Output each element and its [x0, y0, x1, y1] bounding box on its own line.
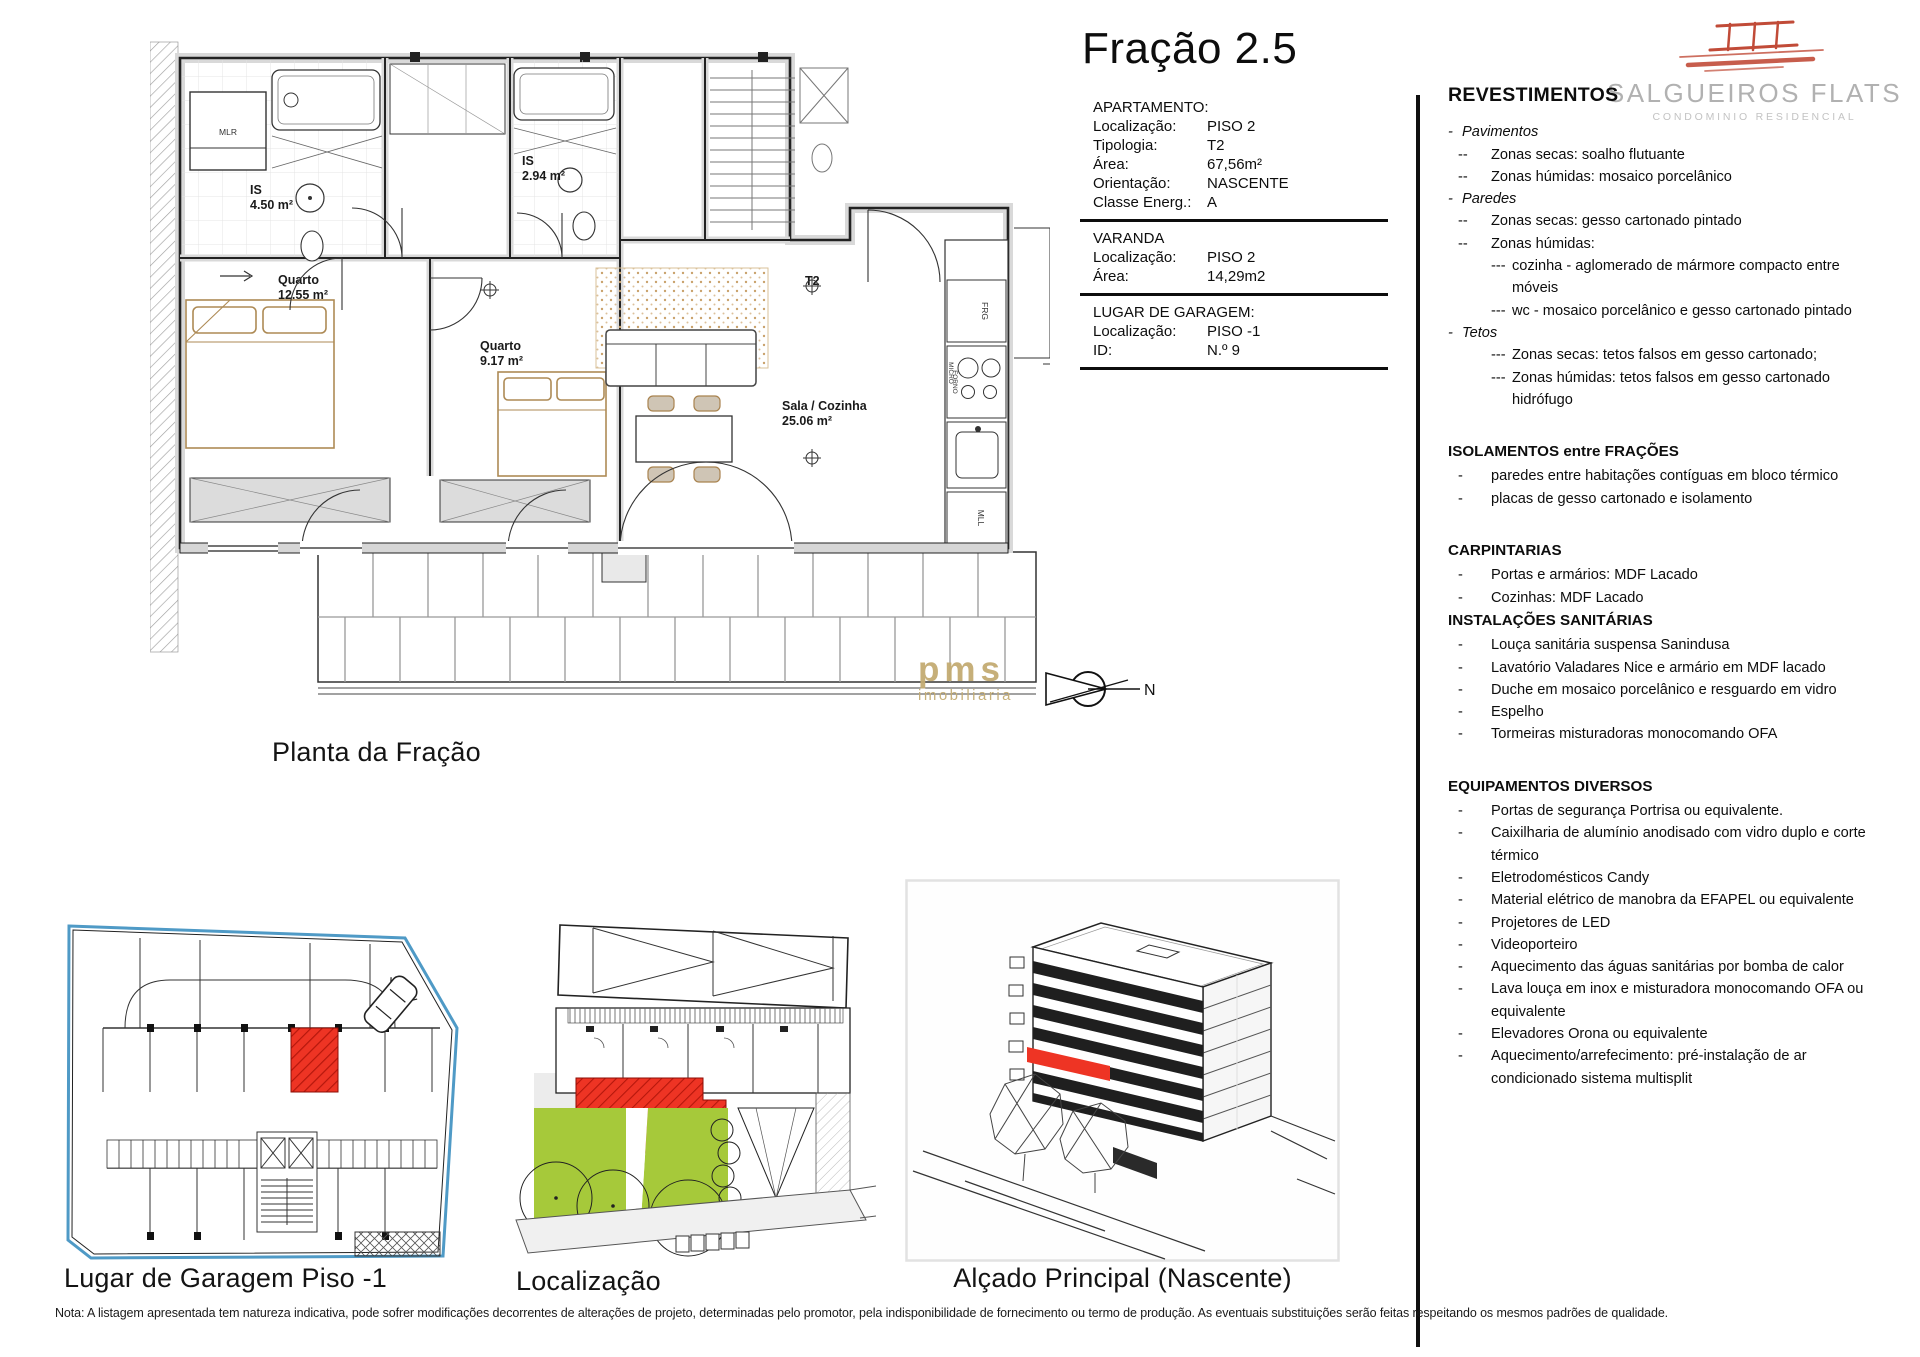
spec-text: Cozinhas: MDF Lacado — [1491, 587, 1884, 609]
info-value: PISO 2 — [1207, 117, 1388, 136]
assigned-parking-hatch — [291, 1028, 338, 1092]
spec-bullet: -- — [1458, 233, 1491, 255]
room-label-quarto1: Quarto — [278, 273, 319, 287]
spec-text: Zonas húmidas: tetos falsos em gesso car… — [1512, 367, 1884, 412]
spec-section: - Pavimentos -- Zonas secas: soalho flut… — [1448, 121, 1884, 411]
spec-line: - placas de gesso cartonado e isolamento — [1448, 488, 1884, 510]
spec-text: Zonas secas: gesso cartonado pintado — [1491, 210, 1884, 232]
info-row: Área: 14,29m2 — [1093, 267, 1388, 286]
elevation-drawing — [905, 879, 1340, 1262]
bathroom-1: MLR IS 4.50 m² — [182, 60, 383, 261]
info-row: Classe Energ.: A — [1093, 193, 1388, 212]
info-row: Localização: PISO 2 — [1093, 248, 1388, 267]
room-area-is1: 4.50 m² — [250, 198, 293, 212]
caption-garage: Lugar de Garagem Piso -1 — [64, 1263, 387, 1294]
spec-line: - Elevadores Orona ou equivalente — [1448, 1023, 1884, 1045]
spec-text: Lava louça em inox e misturadora monocom… — [1491, 978, 1884, 1023]
spec-bullet: - — [1458, 701, 1491, 723]
spec-line: - Lavatório Valadares Nice e armário em … — [1448, 657, 1884, 679]
info-row: Tipologia: T2 — [1093, 136, 1388, 155]
spec-text: Louça sanitária suspensa Sanindusa — [1491, 634, 1884, 656]
info-label: ID: — [1093, 341, 1207, 360]
spec-bullet: - — [1458, 889, 1491, 911]
spec-line: - Lava louça em inox e misturadora monoc… — [1448, 978, 1884, 1023]
spec-text: Zonas secas: soalho flutuante — [1491, 144, 1884, 166]
spec-bullet: --- — [1491, 255, 1512, 300]
info-value: PISO -1 — [1207, 322, 1388, 341]
info-value: NASCENTE — [1207, 174, 1388, 193]
spec-section-heading: INSTALAÇÕES SANITÁRIAS — [1448, 610, 1884, 632]
north-compass-icon: N — [1040, 660, 1160, 718]
page-title: Fração 2.5 — [1082, 26, 1297, 72]
spec-bullet: - — [1458, 723, 1491, 745]
spec-section: ISOLAMENTOS entre FRAÇÕES - paredes entr… — [1448, 441, 1884, 510]
spec-line: - Portas de segurança Portrisa ou equiva… — [1448, 800, 1884, 822]
spec-text: Elevadores Orona ou equivalente — [1491, 1023, 1884, 1045]
spec-text: Tetos — [1462, 322, 1884, 344]
info-value: N.º 9 — [1207, 341, 1388, 360]
spec-bullet: --- — [1491, 300, 1512, 322]
bathroom-2: IS 2.94 m² — [512, 60, 618, 256]
spec-line: - Videoporteiro — [1448, 934, 1884, 956]
info-label: Área: — [1093, 267, 1207, 286]
spec-line: - Paredes — [1448, 188, 1884, 210]
spec-bullet: -- — [1458, 210, 1491, 232]
info-row: Localização: PISO -1 — [1093, 322, 1388, 341]
info-section: APARTAMENTO: Localização: PISO 2 Tipolog… — [1080, 98, 1388, 222]
spec-line: - paredes entre habitações contíguas em … — [1448, 465, 1884, 487]
spec-text: Aquecimento/arrefecimento: pré-instalaçã… — [1491, 1045, 1884, 1090]
spec-line: -- Zonas secas: gesso cartonado pintado — [1448, 210, 1884, 232]
party-wall-hatch — [150, 42, 178, 652]
spec-bullet: - — [1458, 488, 1491, 510]
ramp-grate — [355, 1232, 440, 1256]
spec-line: - Caixilharia de alumínio anodisado com … — [1448, 822, 1884, 867]
oven-label: FORNO — [951, 370, 958, 393]
dishwasher-label: MLL — [976, 510, 986, 527]
spec-section: INSTALAÇÕES SANITÁRIAS - Louça sanitária… — [1448, 610, 1884, 746]
info-row: Orientação: NASCENTE — [1093, 174, 1388, 193]
courtyard — [738, 1093, 850, 1205]
spec-line: --- cozinha - aglomerado de mármore comp… — [1448, 255, 1884, 300]
spec-text: Zonas húmidas: — [1491, 233, 1884, 255]
spec-line: -- Zonas secas: soalho flutuante — [1448, 144, 1884, 166]
caption-elevation: Alçado Principal (Nascente) — [905, 1263, 1340, 1294]
spec-line: - Louça sanitária suspensa Sanindusa — [1448, 634, 1884, 656]
spec-text: Portas e armários: MDF Lacado — [1491, 564, 1884, 586]
spec-bullet: - — [1458, 822, 1491, 867]
caption-floor-plan: Planta da Fração — [272, 737, 481, 768]
spec-section: EQUIPAMENTOS DIVERSOS - Portas de segura… — [1448, 776, 1884, 1090]
spec-section-heading: CARPINTARIAS — [1448, 540, 1884, 562]
info-value: 14,29m2 — [1207, 267, 1388, 286]
spec-bullet: - — [1458, 634, 1491, 656]
info-row: Localização: PISO 2 — [1093, 117, 1388, 136]
spec-bullet: - — [1448, 121, 1462, 143]
specs-title: REVESTIMENTOS — [1448, 84, 1884, 106]
info-value: T2 — [1207, 136, 1388, 155]
spec-line: --- wc - mosaico porcelânico e gesso car… — [1448, 300, 1884, 322]
facade-wall — [180, 541, 1008, 555]
spec-text: Espelho — [1491, 701, 1884, 723]
spec-line: - Aquecimento/arrefecimento: pré-instala… — [1448, 1045, 1884, 1090]
info-row: Área: 67,56m² — [1093, 155, 1388, 174]
fridge-label: FRG — [980, 302, 990, 320]
info-label: Localização: — [1093, 322, 1207, 341]
spec-line: --- Zonas secas: tetos falsos em gesso c… — [1448, 344, 1884, 366]
kitchen-column: FRG MICRO FORNO MLL — [945, 240, 1008, 548]
agency-watermark: pms imobiliaria — [918, 652, 1013, 703]
unit-info-panel: APARTAMENTO: Localização: PISO 2 Tipolog… — [1080, 98, 1388, 377]
room-area-quarto2: 9.17 m² — [480, 354, 523, 368]
spec-bullet: -- — [1458, 144, 1491, 166]
spec-text: placas de gesso cartonado e isolamento — [1491, 488, 1884, 510]
spec-line: - Cozinhas: MDF Lacado — [1448, 587, 1884, 609]
spec-text: cozinha - aglomerado de mármore compacto… — [1512, 255, 1884, 300]
info-label: Localização: — [1093, 117, 1207, 136]
spec-bullet: - — [1458, 657, 1491, 679]
spec-line: - Espelho — [1448, 701, 1884, 723]
spec-text: wc - mosaico porcelânico e gesso cartona… — [1512, 300, 1884, 322]
garage-plan-drawing — [55, 910, 475, 1275]
spec-bullet: - — [1458, 867, 1491, 889]
brand-sketch-icon — [1655, 12, 1855, 72]
info-separator — [1080, 367, 1388, 370]
building-roof — [558, 925, 848, 1008]
spec-text: Material elétrico de manobra da EFAPEL o… — [1491, 889, 1884, 911]
room-area-sala: 25.06 m² — [782, 414, 832, 428]
disclaimer-note: Nota: A listagem apresentada tem naturez… — [55, 1306, 1385, 1320]
info-separator — [1080, 293, 1388, 296]
spec-text: Lavatório Valadares Nice e armário em MD… — [1491, 657, 1884, 679]
spec-line: - Eletrodomésticos Candy — [1448, 867, 1884, 889]
info-section: LUGAR DE GARAGEM: Localização: PISO -1 I… — [1080, 303, 1388, 370]
spec-sheet: { "title": "Fração 2.5", "info": { "sect… — [0, 0, 1920, 1357]
location-plan-drawing — [498, 868, 878, 1268]
spec-line: --- Zonas húmidas: tetos falsos em gesso… — [1448, 367, 1884, 412]
spec-text: Paredes — [1462, 188, 1884, 210]
spec-section-heading: EQUIPAMENTOS DIVERSOS — [1448, 776, 1884, 798]
info-label: Orientação: — [1093, 174, 1207, 193]
spec-text: Aquecimento das águas sanitárias por bom… — [1491, 956, 1884, 978]
spec-line: - Projetores de LED — [1448, 912, 1884, 934]
spec-bullet: - — [1458, 1045, 1491, 1090]
spec-bullet: - — [1458, 587, 1491, 609]
room-label-is1: IS — [250, 183, 262, 197]
spec-bullet: - — [1458, 912, 1491, 934]
spec-bullet: - — [1458, 934, 1491, 956]
spec-line: - Pavimentos — [1448, 121, 1884, 143]
spec-text: paredes entre habitações contíguas em bl… — [1491, 465, 1884, 487]
info-value: 67,56m² — [1207, 155, 1388, 174]
finishes-spec-list: REVESTIMENTOS - Pavimentos -- Zonas seca… — [1448, 84, 1884, 1090]
spec-bullet: - — [1458, 564, 1491, 586]
floor-plan-drawing: MLR IS 4.50 m² IS 2.94 m² Quarto 12.55 m… — [150, 28, 1050, 748]
spec-text: Videoporteiro — [1491, 934, 1884, 956]
info-label: Classe Energ.: — [1093, 193, 1207, 212]
room-label-quarto2: Quarto — [480, 339, 521, 353]
spec-line: - Material elétrico de manobra da EFAPEL… — [1448, 889, 1884, 911]
info-section: VARANDA Localização: PISO 2 Área: 14,29m… — [1080, 229, 1388, 296]
spec-line: - Aquecimento das águas sanitárias por b… — [1448, 956, 1884, 978]
column-divider — [1416, 95, 1420, 1347]
info-label: Área: — [1093, 155, 1207, 174]
info-section-heading: LUGAR DE GARAGEM: — [1093, 303, 1388, 322]
room-label-is2: IS — [522, 154, 534, 168]
spec-bullet: - — [1458, 978, 1491, 1023]
spec-section-heading: ISOLAMENTOS entre FRAÇÕES — [1448, 441, 1884, 463]
spec-section: CARPINTARIAS - Portas e armários: MDF La… — [1448, 540, 1884, 609]
room-area-is2: 2.94 m² — [522, 169, 565, 183]
spec-text: Eletrodomésticos Candy — [1491, 867, 1884, 889]
spec-line: - Tetos — [1448, 322, 1884, 344]
spec-bullet: - — [1458, 465, 1491, 487]
info-label: Tipologia: — [1093, 136, 1207, 155]
spec-text: Portas de segurança Portrisa ou equivale… — [1491, 800, 1884, 822]
spec-line: - Duche em mosaico porcelânico e resguar… — [1448, 679, 1884, 701]
spec-bullet: - — [1448, 322, 1462, 344]
info-value: A — [1207, 193, 1388, 212]
spec-text: Pavimentos — [1462, 121, 1884, 143]
closet-label: MLR — [219, 127, 237, 137]
info-section-heading: APARTAMENTO: — [1093, 98, 1388, 117]
spec-bullet: --- — [1491, 344, 1512, 366]
spec-line: -- Zonas húmidas: mosaico porcelânico — [1448, 166, 1884, 188]
info-label: Localização: — [1093, 248, 1207, 267]
watermark-name: pms — [918, 652, 1013, 687]
spec-text: Duche em mosaico porcelânico e resguardo… — [1491, 679, 1884, 701]
spec-bullet: - — [1448, 188, 1462, 210]
spec-line: - Tormeiras misturadoras monocomando OFA — [1448, 723, 1884, 745]
caption-location: Localização — [516, 1266, 661, 1297]
spec-bullet: - — [1458, 956, 1491, 978]
spec-bullet: -- — [1458, 166, 1491, 188]
spec-bullet: --- — [1491, 367, 1512, 412]
spec-bullet: - — [1458, 679, 1491, 701]
spec-text: Caixilharia de alumínio anodisado com vi… — [1491, 822, 1884, 867]
north-label: N — [1144, 682, 1156, 699]
spec-text: Projetores de LED — [1491, 912, 1884, 934]
spec-text: Tormeiras misturadoras monocomando OFA — [1491, 723, 1884, 745]
spec-text: Zonas secas: tetos falsos em gesso carto… — [1512, 344, 1884, 366]
spec-text: Zonas húmidas: mosaico porcelânico — [1491, 166, 1884, 188]
hall-closets — [390, 64, 505, 134]
spec-bullet: - — [1458, 800, 1491, 822]
info-separator — [1080, 219, 1388, 222]
spec-line: -- Zonas húmidas: — [1448, 233, 1884, 255]
spec-line: - Portas e armários: MDF Lacado — [1448, 564, 1884, 586]
watermark-sub: imobiliaria — [918, 688, 1013, 703]
room-label-sala: Sala / Cozinha — [782, 399, 868, 413]
info-value: PISO 2 — [1207, 248, 1388, 267]
spec-bullet: - — [1458, 1023, 1491, 1045]
info-row: ID: N.º 9 — [1093, 341, 1388, 360]
info-section-heading: VARANDA — [1093, 229, 1388, 248]
